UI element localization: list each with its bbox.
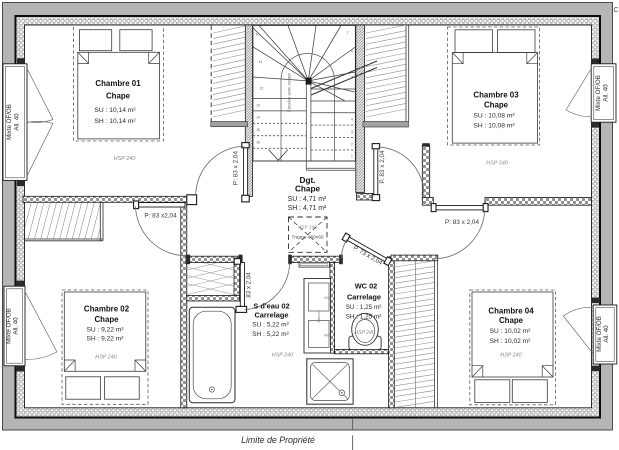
svg-text:HSP 240: HSP 240: [500, 352, 521, 358]
svg-text:SH : 10,02 m²: SH : 10,02 m²: [490, 338, 531, 345]
svg-text:All. 40: All. 40: [603, 84, 610, 102]
svg-text:3: 3: [351, 130, 353, 134]
svg-text:40C: 40C: [324, 296, 331, 300]
svg-text:Chape: Chape: [295, 184, 320, 193]
svg-text:40C: 40C: [324, 334, 331, 338]
svg-text:12: 12: [260, 87, 264, 91]
svg-text:Mixte OF/OB: Mixte OF/OB: [595, 75, 602, 111]
svg-text:SH : 5,22 m²: SH : 5,22 m²: [252, 331, 289, 338]
svg-text:SU : 10,02 m²: SU : 10,02 m²: [490, 328, 531, 335]
svg-text:Mixte OF/OB: Mixte OF/OB: [6, 104, 13, 140]
svg-text:HSP 240: HSP 240: [486, 160, 509, 166]
svg-text:HSP 240: HSP 240: [298, 225, 317, 231]
svg-text:SH : 4,71 m²: SH : 4,71 m²: [288, 205, 327, 212]
svg-text:SU : 10,14 m²: SU : 10,14 m²: [94, 107, 136, 114]
svg-text:Chambre 04: Chambre 04: [488, 306, 534, 315]
svg-text:P: 83 x 2,04: P: 83 x 2,04: [445, 219, 480, 226]
svg-text:Limite de Propriété: Limite de Propriété: [241, 435, 315, 445]
svg-text:5: 5: [352, 76, 354, 80]
svg-text:83 x 2,04: 83 x 2,04: [245, 272, 252, 298]
svg-text:Mixte OF/OB: Mixte OF/OB: [596, 316, 603, 352]
svg-text:SU : 4,71 m²: SU : 4,71 m²: [288, 196, 327, 203]
svg-text:Chambre 03: Chambre 03: [473, 91, 519, 100]
svg-text:14: 14: [256, 116, 260, 120]
svg-text:4: 4: [351, 118, 353, 122]
svg-text:HSP 240: HSP 240: [354, 330, 375, 336]
svg-text:SU : 5,22 m²: SU : 5,22 m²: [252, 321, 289, 328]
svg-text:Chape: Chape: [106, 92, 131, 101]
svg-text:SU : 1,25 m²: SU : 1,25 m²: [346, 304, 382, 311]
svg-text:SH : 10,08 m²: SH : 10,08 m²: [473, 122, 515, 129]
svg-text:SH : 10,14 m²: SH : 10,14 m²: [94, 118, 136, 125]
svg-text:P. 83 x 2,04: P. 83 x 2,04: [379, 150, 386, 184]
svg-text:Carrelage: Carrelage: [347, 293, 381, 302]
svg-text:SU : 9,22 m²: SU : 9,22 m²: [86, 326, 124, 333]
svg-text:SH : 1,25 m²: SH : 1,25 m²: [346, 314, 382, 321]
svg-text:S d'eau 02: S d'eau 02: [253, 301, 289, 310]
svg-text:P: 83 x2,04: P: 83 x2,04: [144, 212, 177, 219]
svg-text:7: 7: [347, 31, 349, 35]
svg-text:SU : 10,08 m²: SU : 10,08 m²: [473, 112, 515, 119]
svg-text:Chambre 02: Chambre 02: [84, 305, 130, 314]
svg-text:P: 83 x 2,04: P: 83 x 2,04: [232, 151, 239, 186]
svg-text:WC 02: WC 02: [355, 282, 378, 291]
svg-text:All. 40: All. 40: [14, 113, 21, 131]
svg-text:6: 6: [351, 49, 353, 53]
svg-text:16: 16: [256, 141, 260, 145]
svg-text:11: 11: [259, 60, 263, 64]
svg-text:Chape: Chape: [484, 100, 509, 109]
svg-text:HSP 240: HSP 240: [95, 354, 116, 360]
svg-text:1: 1: [351, 155, 353, 159]
svg-text:HSP 240: HSP 240: [272, 352, 293, 358]
svg-text:15: 15: [256, 128, 260, 132]
svg-text:C: C: [614, 7, 619, 14]
svg-text:All. 40: All. 40: [13, 317, 20, 335]
svg-text:Chambre 01: Chambre 01: [95, 79, 141, 88]
svg-text:2: 2: [351, 143, 353, 147]
svg-text:13: 13: [256, 104, 260, 108]
svg-text:Escalier avec rampe: Escalier avec rampe: [286, 72, 291, 112]
svg-text:Trappe 450x60: Trappe 450x60: [291, 235, 323, 241]
svg-text:HSP 240: HSP 240: [114, 156, 137, 162]
svg-text:Chape: Chape: [499, 316, 524, 325]
svg-text:All. 40: All. 40: [603, 325, 610, 343]
svg-text:Chape: Chape: [94, 315, 119, 324]
svg-text:Atlantic: Atlantic: [317, 311, 321, 322]
svg-text:10: 10: [256, 33, 260, 37]
svg-text:SH : 9,22 m²: SH : 9,22 m²: [86, 336, 124, 343]
svg-text:Mixte OF/OB: Mixte OF/OB: [6, 308, 13, 344]
svg-text:Carrelage: Carrelage: [254, 311, 288, 320]
